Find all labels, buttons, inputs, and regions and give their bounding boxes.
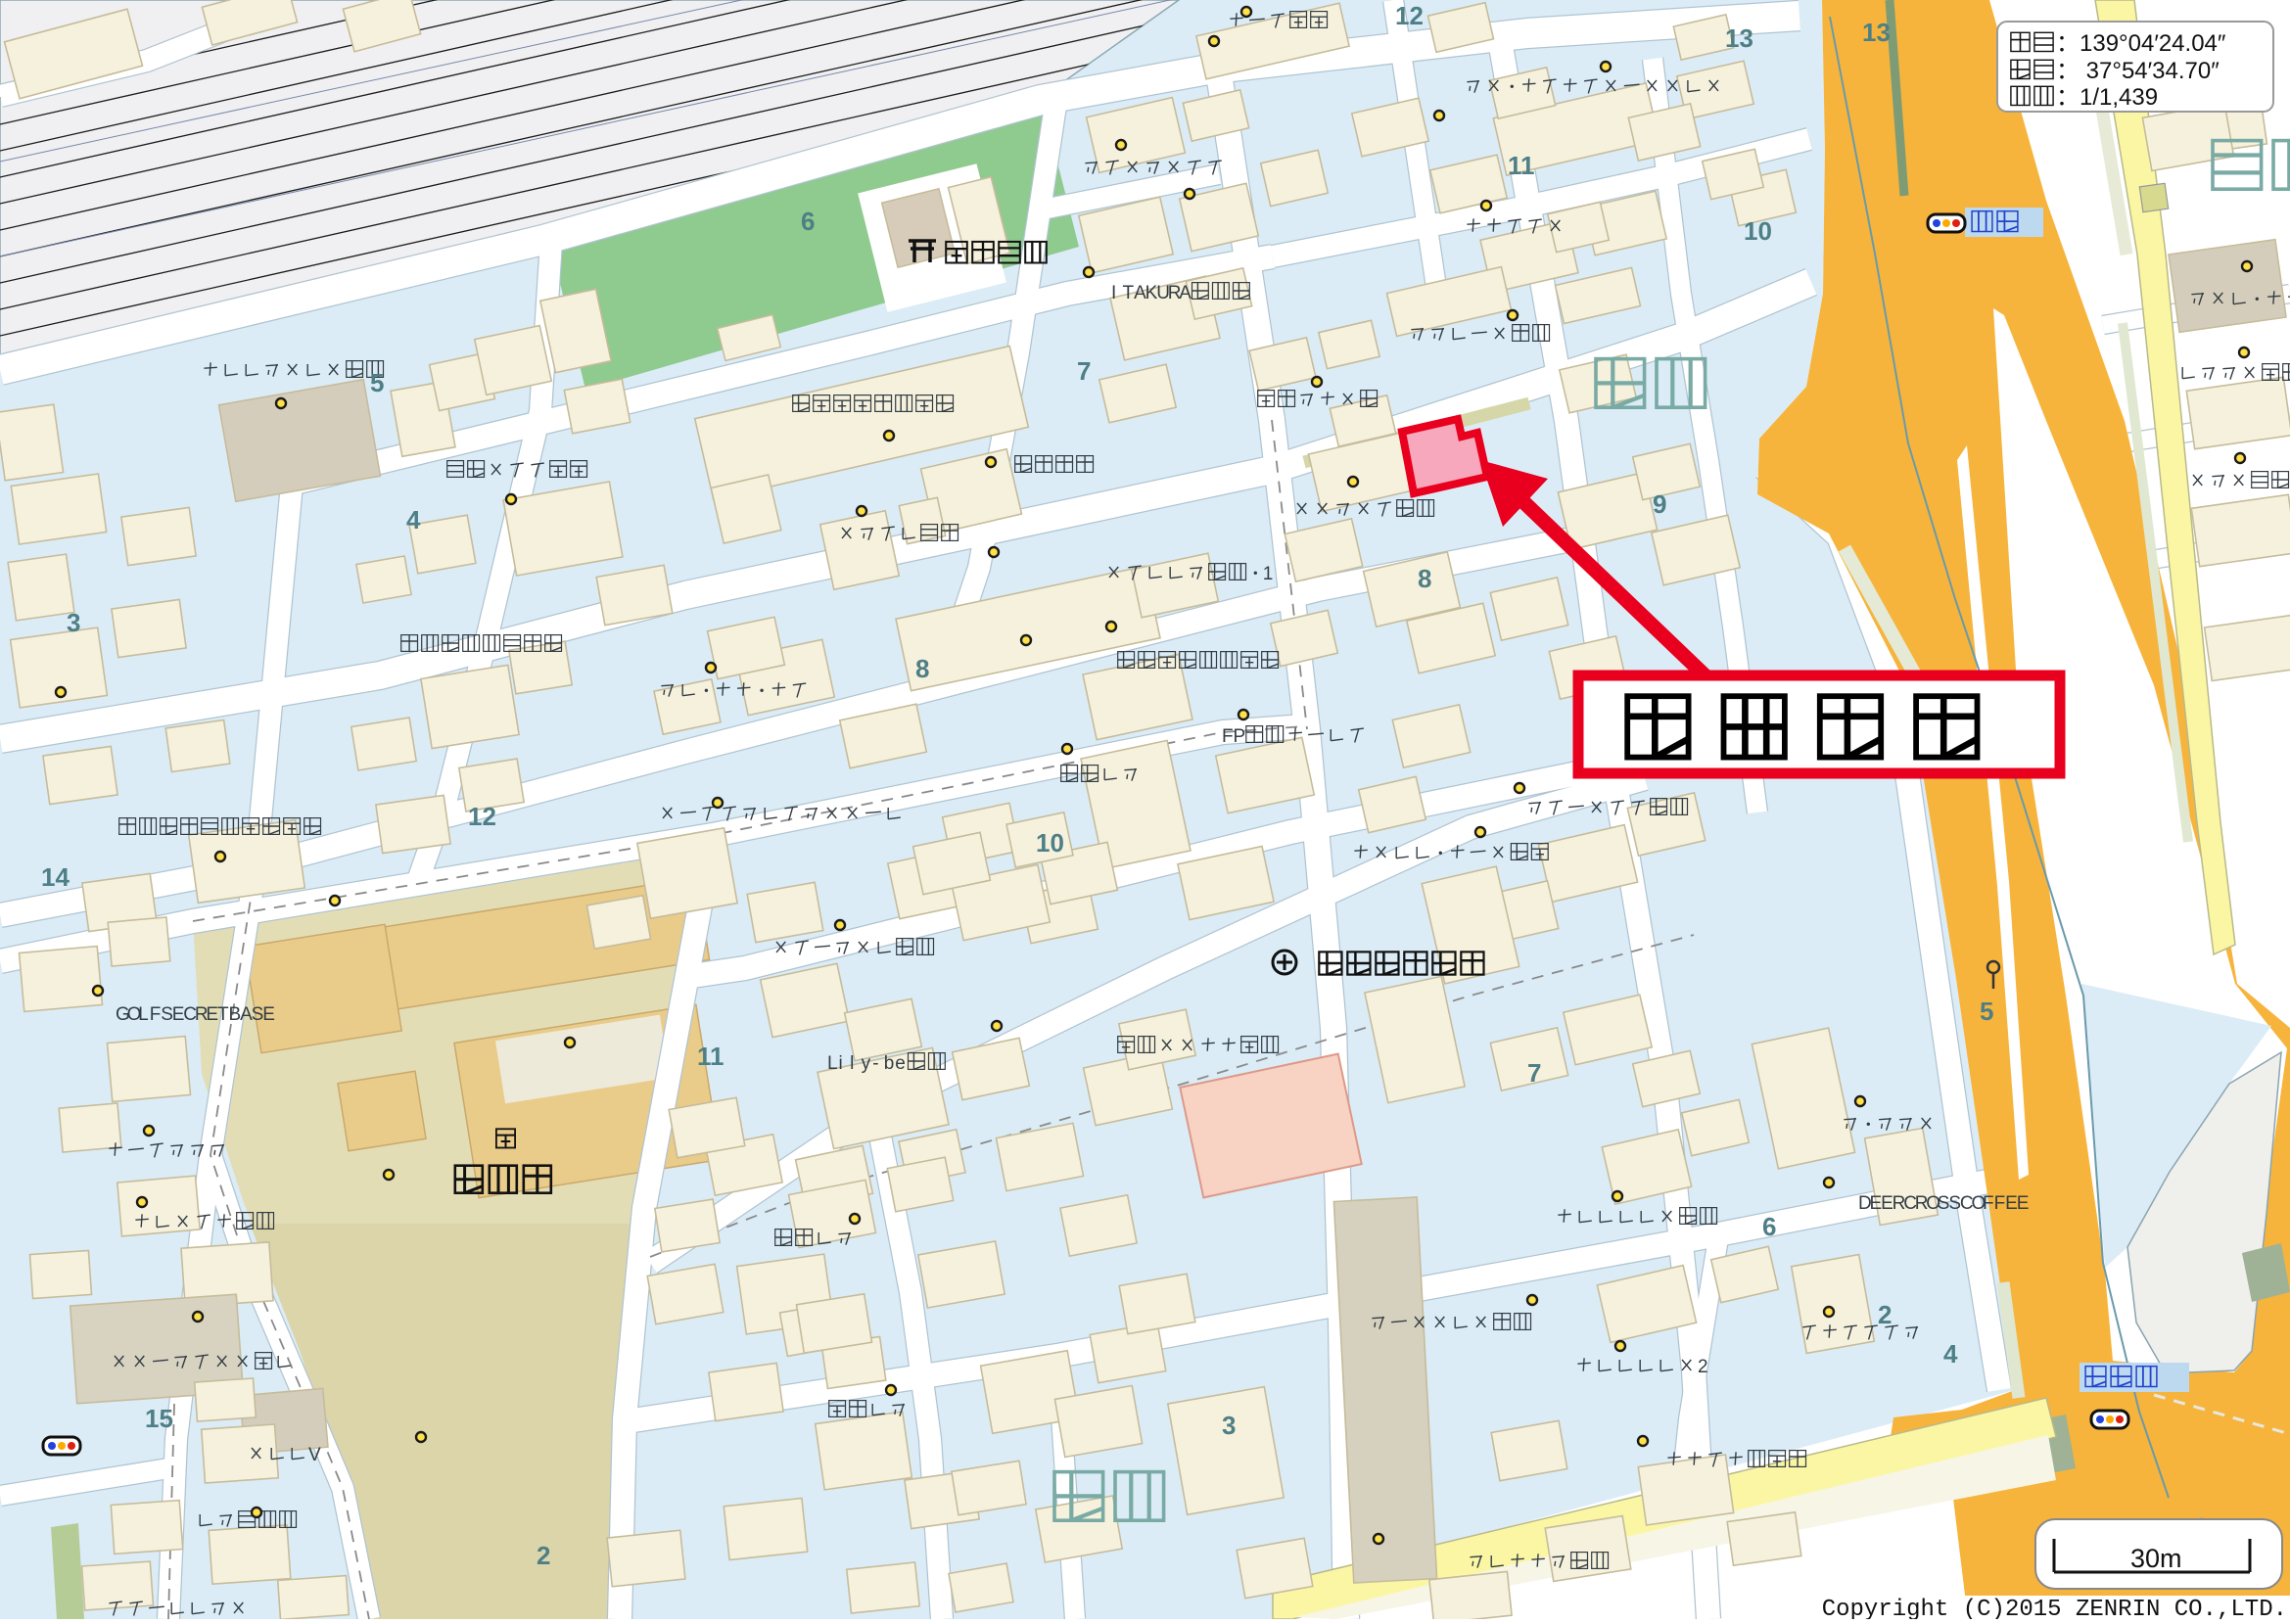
svg-text:12: 12 (1395, 1, 1424, 30)
svg-text:l: l (850, 1053, 854, 1074)
svg-text:F: F (1222, 726, 1234, 747)
svg-text:1: 1 (1263, 564, 1274, 584)
svg-text:9: 9 (1653, 489, 1666, 519)
svg-text:6: 6 (1762, 1212, 1776, 1241)
svg-text:13: 13 (1725, 23, 1753, 53)
svg-text:14: 14 (41, 862, 70, 892)
svg-text:11: 11 (697, 1042, 724, 1071)
svg-text:3: 3 (1222, 1411, 1236, 1440)
svg-text:T: T (217, 1004, 229, 1025)
svg-text:7: 7 (1527, 1058, 1541, 1088)
svg-text:4: 4 (1943, 1339, 1958, 1369)
svg-text:y: y (862, 1053, 871, 1074)
svg-text:F: F (1994, 1193, 2006, 1214)
svg-text:8: 8 (915, 654, 929, 683)
svg-text:P: P (1234, 726, 1246, 747)
svg-text:5: 5 (370, 368, 384, 397)
svg-text:2: 2 (1878, 1300, 1892, 1329)
svg-text:V: V (308, 1445, 321, 1465)
svg-text:8: 8 (1418, 564, 1431, 593)
svg-text:-: - (872, 1053, 878, 1074)
svg-text:11: 11 (1508, 151, 1535, 180)
svg-text:13: 13 (1862, 18, 1891, 47)
svg-text:10: 10 (1744, 216, 1772, 246)
svg-text:： 37°54′34.70″: ： 37°54′34.70″ (2056, 58, 2220, 84)
svg-text:L: L (138, 1004, 149, 1025)
svg-text:i: i (839, 1053, 843, 1074)
svg-text:15: 15 (145, 1404, 173, 1433)
svg-text:10: 10 (1036, 828, 1064, 858)
svg-text:30m: 30m (2130, 1544, 2182, 1573)
svg-text:F: F (150, 1004, 162, 1025)
svg-text:6: 6 (801, 207, 815, 236)
svg-text:Copyright (C)2015 ZENRIN CO.,L: Copyright (C)2015 ZENRIN CO.,LTD. (1822, 1597, 2287, 1619)
svg-text:L: L (827, 1053, 838, 1074)
svg-text:5: 5 (1980, 997, 1993, 1026)
svg-text:7: 7 (1077, 356, 1091, 386)
svg-text:T: T (1123, 283, 1135, 303)
svg-text:E: E (262, 1004, 275, 1025)
svg-text:b: b (884, 1053, 895, 1074)
svg-text:4: 4 (406, 505, 421, 534)
svg-text:3: 3 (67, 608, 80, 637)
svg-text:I: I (1111, 283, 1116, 303)
svg-text:2: 2 (1698, 1357, 1708, 1377)
svg-text:E: E (2017, 1193, 2030, 1214)
svg-text:12: 12 (468, 802, 496, 831)
svg-text:2: 2 (537, 1541, 550, 1570)
svg-text:：139°04′24.04″: ：139°04′24.04″ (2056, 30, 2226, 57)
svg-text:A: A (1179, 283, 1192, 303)
svg-text:：1/1,439: ：1/1,439 (2056, 84, 2158, 111)
svg-text:F: F (1983, 1193, 1994, 1214)
svg-text:e: e (895, 1053, 906, 1074)
